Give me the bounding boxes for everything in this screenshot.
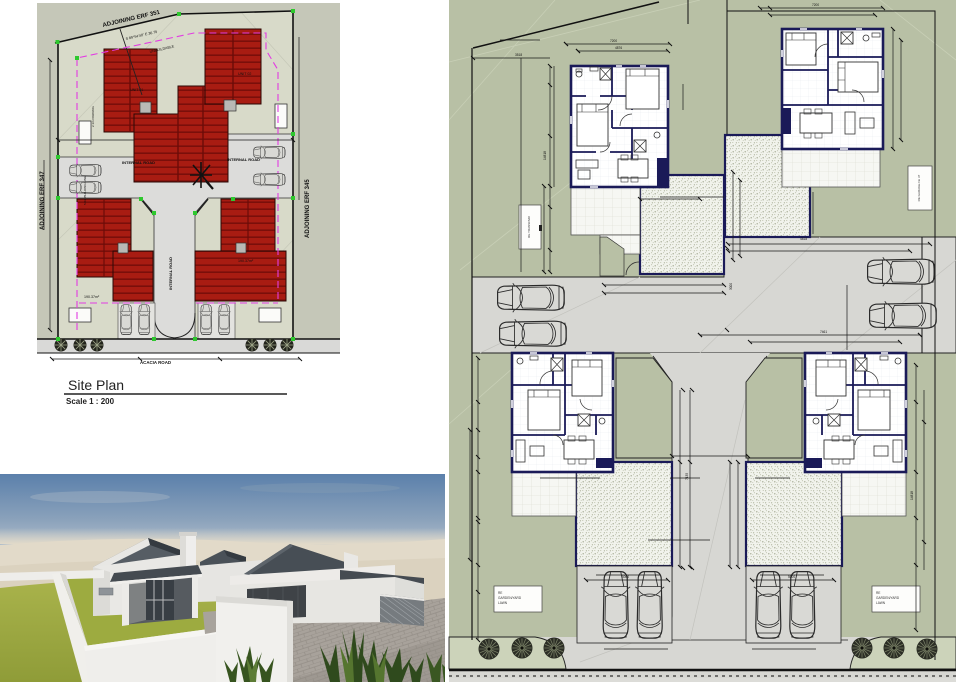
svg-text:4818: 4818 bbox=[800, 237, 807, 241]
svg-text:7200: 7200 bbox=[610, 39, 617, 43]
svg-text:7200: 7200 bbox=[812, 3, 819, 7]
svg-text:ACACIA ROAD: ACACIA ROAD bbox=[140, 360, 171, 365]
svg-text:190.37m²: 190.37m² bbox=[84, 295, 100, 299]
svg-text:2.1m PARKING: 2.1m PARKING bbox=[91, 106, 95, 127]
svg-text:3518: 3518 bbox=[515, 53, 522, 57]
svg-text:INTERNAL ROAD: INTERNAL ROAD bbox=[168, 257, 173, 290]
svg-text:RE: RE bbox=[498, 591, 502, 595]
svg-text:LAWN: LAWN bbox=[498, 601, 508, 605]
svg-text:5.0m BUILDING LINE: 5.0m BUILDING LINE bbox=[83, 176, 87, 205]
svg-text:LAWN: LAWN bbox=[876, 601, 886, 605]
svg-text:5000: 5000 bbox=[622, 575, 629, 579]
svg-text:UNIT 01: UNIT 01 bbox=[130, 88, 143, 92]
svg-text:ADJOINING ERF 345: ADJOINING ERF 345 bbox=[305, 179, 311, 238]
svg-text:4876: 4876 bbox=[615, 46, 622, 50]
svg-text:14818: 14818 bbox=[910, 491, 914, 500]
svg-text:RE GARAGE No 37: RE GARAGE No 37 bbox=[917, 174, 921, 201]
svg-text:14818: 14818 bbox=[543, 151, 547, 160]
svg-text:Scale 1 : 200: Scale 1 : 200 bbox=[66, 397, 115, 406]
svg-text:RE TRANSFMR: RE TRANSFMR bbox=[527, 215, 531, 237]
svg-text:Site Plan: Site Plan bbox=[68, 377, 124, 393]
svg-text:3000: 3000 bbox=[729, 283, 733, 290]
svg-text:190.37m²: 190.37m² bbox=[238, 259, 254, 263]
svg-text:7461: 7461 bbox=[820, 330, 827, 334]
svg-text:ADJOINING ERF 347: ADJOINING ERF 347 bbox=[40, 171, 46, 230]
svg-text:RE: RE bbox=[876, 591, 880, 595]
svg-text:GARDEN/YARD: GARDEN/YARD bbox=[876, 596, 900, 600]
svg-text:7135: 7135 bbox=[685, 473, 689, 480]
svg-text:5000: 5000 bbox=[788, 575, 795, 579]
svg-text:INTERNAL ROAD: INTERNAL ROAD bbox=[227, 157, 260, 162]
svg-text:INTERNAL ROAD: INTERNAL ROAD bbox=[122, 160, 155, 165]
svg-text:UNIT 02: UNIT 02 bbox=[238, 72, 251, 76]
svg-text:GARDEN/YARD: GARDEN/YARD bbox=[498, 596, 522, 600]
